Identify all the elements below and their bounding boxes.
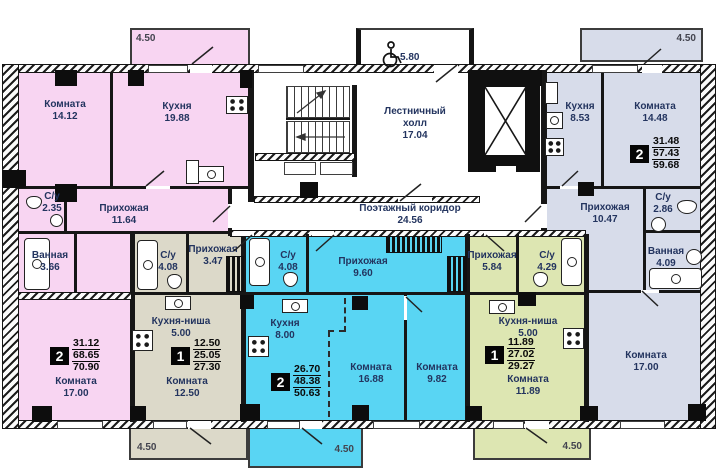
window bbox=[258, 65, 304, 73]
balcony-door-opening[interactable] bbox=[188, 421, 211, 429]
floor-plan: Комната14.12 Кухня19.88 С/у2.35 Прихожая… bbox=[0, 0, 725, 473]
wall-stairs-south bbox=[255, 153, 355, 161]
apartment-badge: 2 26.7048.3850.63 bbox=[271, 364, 321, 399]
wall-corridor-north bbox=[254, 196, 480, 203]
room-label: Прихожая11.64 bbox=[89, 203, 159, 227]
room-label: Комната17.00 bbox=[611, 350, 681, 374]
room-label: С/у4.08 bbox=[253, 250, 323, 274]
kitchen-sink bbox=[165, 296, 191, 310]
column bbox=[240, 70, 252, 88]
built-in-closet bbox=[386, 236, 442, 253]
apartment-badge: 1 11.8927.0229.27 bbox=[485, 337, 535, 372]
column bbox=[128, 70, 144, 86]
fridge bbox=[186, 160, 199, 184]
stove bbox=[226, 96, 248, 114]
dashed-zone-line bbox=[328, 330, 345, 332]
balcony-area-label: 4.50 bbox=[137, 442, 156, 453]
balcony-door-opening[interactable] bbox=[190, 65, 212, 73]
column bbox=[578, 182, 594, 196]
kitchen-sink bbox=[198, 166, 224, 182]
room-label: Комната14.48 bbox=[620, 101, 690, 125]
wall-exterior-right bbox=[700, 64, 716, 429]
balcony-area-label: 4.50 bbox=[320, 444, 354, 455]
kitchen-sink bbox=[489, 300, 515, 314]
room-label: С/у2.35 bbox=[17, 191, 87, 215]
wall-partition bbox=[245, 292, 309, 295]
window bbox=[57, 421, 103, 429]
wall-apt4-apt5 bbox=[584, 234, 589, 422]
door-opening[interactable] bbox=[560, 186, 580, 189]
balcony-area-label: 4.50 bbox=[136, 33, 155, 44]
wall-partition bbox=[134, 292, 242, 295]
column bbox=[352, 405, 369, 421]
door-opening[interactable] bbox=[541, 204, 547, 228]
stairs-landing-line bbox=[286, 118, 350, 120]
balcony-area-label: 4.50 bbox=[548, 441, 582, 452]
window bbox=[267, 421, 300, 429]
elevator-cabin[interactable] bbox=[483, 85, 527, 157]
room-label: Комната16.88 bbox=[336, 362, 406, 386]
room-label: Ванная4.09 bbox=[631, 246, 701, 270]
column bbox=[130, 406, 146, 420]
stairs-landing-sill bbox=[320, 162, 353, 175]
door-opening[interactable] bbox=[484, 231, 506, 236]
door-opening[interactable] bbox=[234, 231, 254, 236]
dashed-zone-line bbox=[344, 298, 346, 332]
stairs-upper-flight[interactable] bbox=[286, 86, 350, 118]
window bbox=[148, 65, 188, 73]
wall-exterior-left bbox=[2, 64, 19, 429]
balcony-door-opening[interactable] bbox=[300, 421, 322, 429]
stairs-landing-sill bbox=[284, 162, 316, 175]
room-label: Прихожая9.60 bbox=[328, 256, 398, 280]
room-label: Кухня8.00 bbox=[250, 318, 320, 342]
apartment-badge: 2 31.1268.6570.90 bbox=[50, 338, 100, 373]
window bbox=[620, 421, 665, 429]
window bbox=[153, 421, 187, 429]
accessible-balcony-area: 5.80 bbox=[400, 52, 444, 64]
room-label: Прихожая3.47 bbox=[178, 244, 248, 268]
column bbox=[240, 404, 260, 421]
column bbox=[466, 406, 482, 420]
dashed-zone-line bbox=[328, 331, 330, 417]
wall-partition bbox=[601, 72, 604, 186]
washbasin bbox=[50, 214, 63, 227]
room-label: Кухня8.53 bbox=[545, 101, 615, 125]
room-label: Ванная3.66 bbox=[15, 250, 85, 274]
room-label: Комната17.00 bbox=[41, 376, 111, 400]
column bbox=[300, 182, 318, 198]
door-opening[interactable] bbox=[641, 290, 659, 293]
column bbox=[55, 70, 77, 86]
column bbox=[352, 296, 368, 310]
column bbox=[518, 292, 536, 306]
door-opening[interactable] bbox=[398, 197, 432, 202]
room-label: Комната9.82 bbox=[402, 362, 472, 386]
column bbox=[580, 406, 598, 420]
balcony-door-opening[interactable] bbox=[642, 65, 662, 73]
stair-hall-label: Лестничный холл 17.04 bbox=[370, 106, 460, 142]
door-opening[interactable] bbox=[404, 296, 407, 320]
room-label: Комната12.50 bbox=[152, 376, 222, 400]
stove bbox=[563, 328, 584, 349]
balcony-door-opening[interactable] bbox=[525, 421, 549, 429]
wall-partition bbox=[309, 292, 467, 295]
door-opening[interactable] bbox=[312, 231, 334, 236]
wall-stairhall-left bbox=[248, 70, 254, 202]
room-label: Комната11.89 bbox=[493, 374, 563, 398]
room-label: Комната14.12 bbox=[30, 99, 100, 123]
balcony-door-opening[interactable] bbox=[434, 65, 458, 73]
window bbox=[592, 65, 638, 73]
kitchen-sink bbox=[282, 299, 308, 313]
wall-partition bbox=[18, 186, 248, 189]
wall-partition bbox=[18, 231, 230, 234]
column bbox=[240, 295, 254, 309]
door-opening[interactable] bbox=[146, 186, 170, 189]
apartment-badge: 1 12.5025.0527.30 bbox=[171, 338, 221, 373]
corridor-label: Поэтажный коридор 24.56 bbox=[345, 203, 475, 227]
balcony-area-label: 4.50 bbox=[660, 33, 696, 44]
column bbox=[688, 404, 706, 421]
window bbox=[373, 421, 420, 429]
column bbox=[2, 170, 26, 188]
washbasin bbox=[651, 217, 666, 232]
bathtub bbox=[649, 268, 702, 289]
room-label: Кухня19.88 bbox=[142, 101, 212, 125]
stove bbox=[545, 138, 564, 156]
elevator-door-opening[interactable] bbox=[496, 166, 516, 172]
wall-partition bbox=[110, 72, 113, 188]
room-label: С/у4.29 bbox=[512, 250, 582, 274]
wall-partition bbox=[643, 230, 700, 233]
apartment-badge: 2 31.4857.4359.68 bbox=[630, 136, 680, 171]
wall-exterior-bottom bbox=[6, 420, 706, 429]
room-label: С/у2.86 bbox=[628, 192, 698, 216]
door-opening[interactable] bbox=[228, 204, 232, 228]
window bbox=[493, 421, 524, 429]
wall-partition bbox=[18, 292, 132, 300]
column bbox=[32, 406, 52, 422]
stairs-lower-flight[interactable] bbox=[286, 121, 350, 153]
